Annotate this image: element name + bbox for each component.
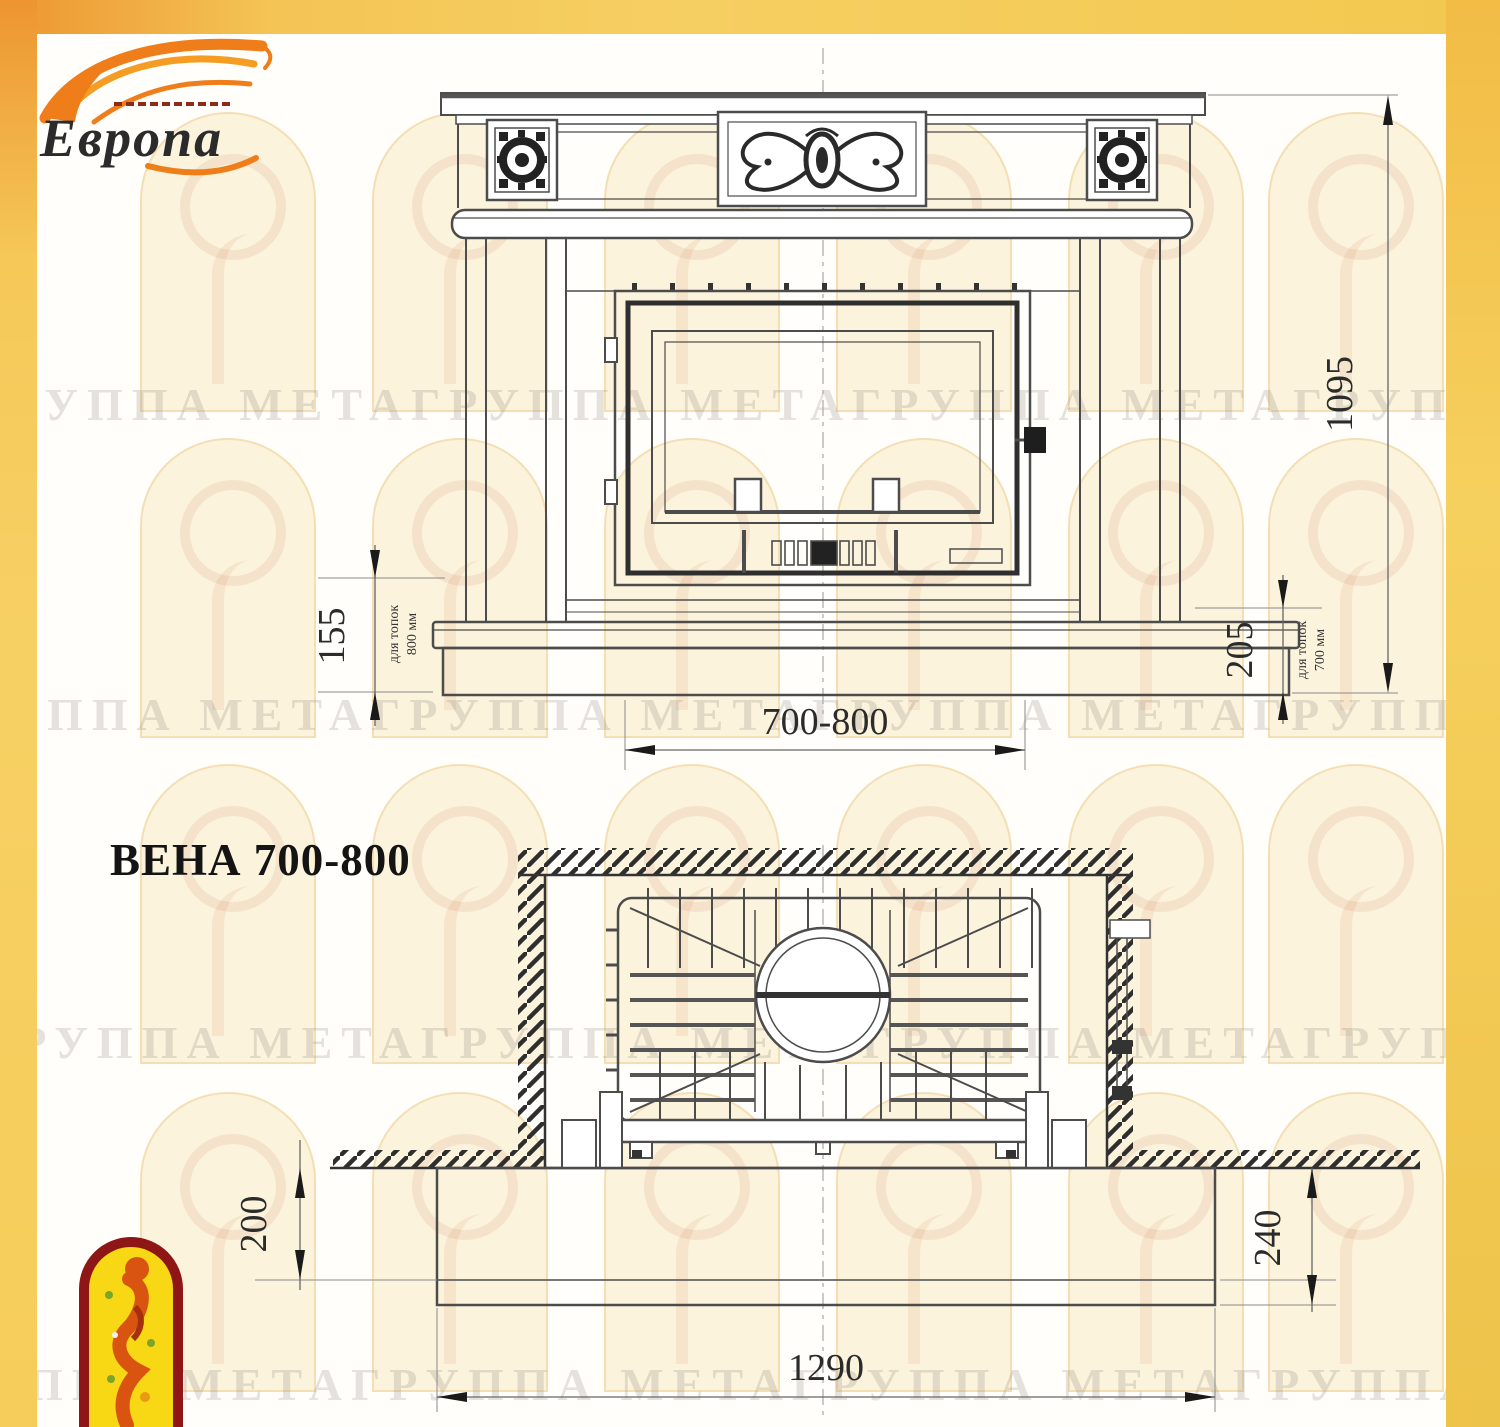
spec-sheet-page: ГРУППА МЕТАГРУППА МЕТАГРУППА МЕТАГРУППА … [0, 0, 1500, 1427]
dim-label-plinth-right: 205 [1219, 622, 1261, 679]
dimension-700-800: 700-800 [625, 700, 1025, 770]
base-plinth [433, 622, 1299, 695]
side-post [1026, 1092, 1048, 1168]
note-left-line2: 800 мм [405, 613, 420, 655]
firebox-plan [562, 888, 1150, 1168]
dim-label-left-depth: 200 [233, 1196, 275, 1253]
note-right-line1: для топок [1295, 621, 1310, 679]
note-left-line1: для топок [387, 605, 402, 663]
dimension-1095: 1095 [1208, 95, 1398, 693]
note-right-line2: 700 мм [1313, 629, 1328, 671]
plan-view [330, 845, 1420, 1420]
dim-label-right-depth: 240 [1247, 1210, 1289, 1267]
stained-glass-arch-icon [79, 1237, 183, 1427]
front-view [433, 48, 1299, 716]
hinge [605, 480, 617, 504]
dim-label-opening-width: 700-800 [762, 701, 889, 743]
hearth-platform [437, 1168, 1215, 1305]
glass-tab [873, 479, 899, 512]
left-pillar [466, 238, 566, 622]
door-latch [1024, 427, 1046, 453]
dim-label-total-height: 1095 [1319, 356, 1361, 432]
center-frieze-ornament [718, 112, 926, 206]
insert-base-bar [620, 1120, 1028, 1142]
left-outer-ticks [606, 930, 618, 1105]
fireplace-technical-drawing: 1095 155 для топок 800 мм 205 для топок … [0, 0, 1500, 1427]
side-block [562, 1120, 596, 1168]
dimension-155: 155 для топок 800 мм [311, 545, 445, 726]
frame-band-left [0, 0, 37, 1427]
nameplate [950, 549, 1002, 563]
dimension-240: 240 [1220, 1168, 1336, 1312]
dim-label-hearth-width: 1290 [788, 1347, 864, 1389]
frame-band-right [1446, 0, 1500, 1427]
brand-flame-icon: Европа [30, 26, 280, 191]
cornice-molding [452, 210, 1192, 238]
left-ribs [630, 975, 755, 1100]
dim-label-plinth-left: 155 [311, 608, 353, 665]
page-title: ВЕНА 700-800 [110, 834, 411, 886]
wall-vent [1110, 920, 1150, 938]
dimension-1290: 1290 [437, 1308, 1215, 1412]
hinge [605, 338, 617, 362]
side-post [600, 1092, 622, 1168]
brand-name: Европа [39, 108, 223, 168]
right-rosette-ornament [1087, 120, 1157, 200]
glass-tab [735, 479, 761, 512]
logo-tagline-band [114, 102, 230, 106]
vent-grille [772, 541, 875, 565]
logo: Европа [30, 26, 280, 191]
dimension-205: 205 для топок 700 мм [1195, 575, 1328, 724]
side-block [1052, 1120, 1086, 1168]
left-rosette-ornament [487, 120, 557, 200]
right-pillar [1080, 238, 1180, 622]
